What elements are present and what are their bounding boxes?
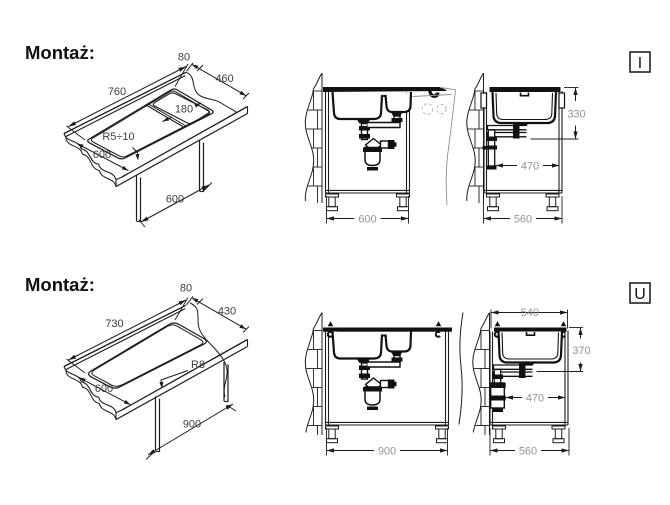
svg-text:80: 80 [180,283,192,295]
svg-text:900: 900 [183,419,201,431]
svg-text:540: 540 [521,307,539,319]
svg-text:370: 370 [572,345,590,357]
svg-text:600: 600 [358,213,376,225]
svg-text:R5÷10: R5÷10 [102,131,134,143]
svg-text:600: 600 [93,149,111,161]
svg-text:470: 470 [526,392,544,404]
svg-text:Montaż:: Montaż: [25,274,95,295]
svg-text:600: 600 [166,194,184,206]
svg-text:430: 430 [218,306,236,318]
svg-text:600: 600 [95,383,113,395]
svg-text:730: 730 [105,318,123,330]
svg-text:R8: R8 [191,359,205,371]
svg-text:330: 330 [567,109,585,121]
svg-text:560: 560 [519,445,537,457]
svg-text:Montaż:: Montaż: [25,42,95,63]
svg-text:900: 900 [378,445,396,457]
svg-text:470: 470 [521,160,539,172]
svg-text:560: 560 [514,213,532,225]
svg-text:I: I [638,55,642,72]
svg-text:U: U [634,286,646,303]
svg-text:180: 180 [175,104,193,116]
svg-text:760: 760 [108,86,126,98]
svg-text:80: 80 [178,52,190,64]
svg-text:460: 460 [215,73,233,85]
